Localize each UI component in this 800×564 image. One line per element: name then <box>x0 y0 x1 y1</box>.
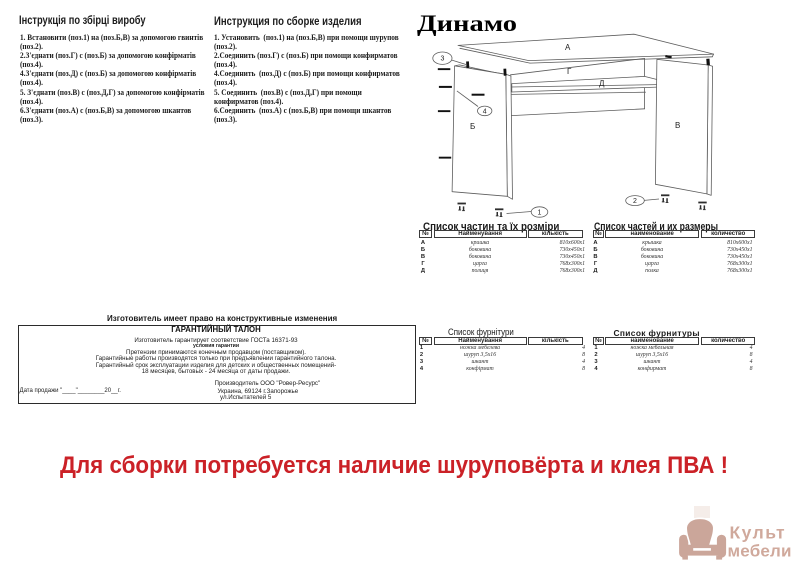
svg-text:1: 1 <box>538 210 542 217</box>
svg-text:2: 2 <box>633 198 637 205</box>
svg-text:Культ: Культ <box>730 523 787 543</box>
svg-text:3: 3 <box>440 56 444 63</box>
svg-text:4: 4 <box>483 108 487 115</box>
svg-text:мебели: мебели <box>728 542 792 561</box>
